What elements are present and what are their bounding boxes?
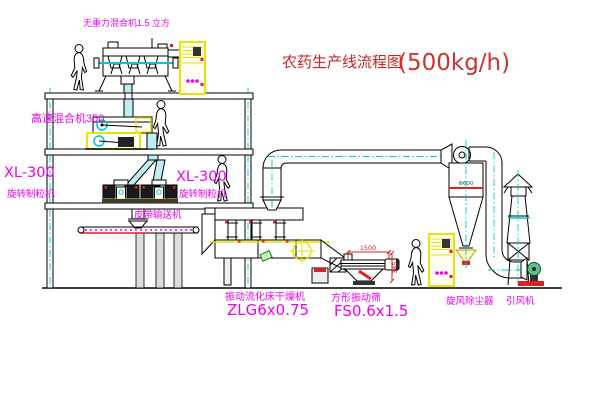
mixer-discharge-pipe — [124, 99, 133, 117]
cad-drawing-canvas: 1500 345 Φ600 无重力混合机1.5 立方 高速混合机350 XL-3… — [0, 0, 600, 403]
person-ground — [408, 240, 423, 286]
induced-draft-fan — [518, 258, 544, 286]
exhaust-duct — [260, 150, 455, 213]
granulator-right — [140, 180, 178, 203]
drawing-title: 农药生产线流程图 (500kg/h) — [282, 50, 510, 76]
label-granulator-left-name: 旋转制粒机 — [7, 188, 55, 200]
control-cabinet-top — [180, 42, 205, 94]
label-granulator-right-name: 旋转制粒机 — [179, 188, 227, 200]
cyclone-diameter-dimension: Φ600 — [459, 181, 474, 187]
floor-slab-top — [45, 93, 253, 99]
flow-diagram-svg: 1500 345 Φ600 无重力混合机1.5 立方 高速混合机350 XL-3… — [0, 0, 600, 403]
control-cabinet-right — [429, 234, 454, 286]
person-top-floor — [71, 45, 86, 91]
label-dryer-model: ZLG6x0.75 — [227, 301, 309, 319]
label-belt-conveyor: 皮带输送机 — [134, 209, 182, 221]
title-capacity: (500kg/h) — [398, 50, 510, 76]
label-cyclone: 旋风除尘器 — [446, 295, 494, 307]
label-high-speed-mixer: 高速混合机350 — [31, 111, 104, 125]
label-sieve-model: FS0.6x1.5 — [334, 302, 408, 320]
floor-slab-middle — [45, 149, 253, 155]
label-fan: 引风机 — [506, 295, 535, 307]
sieve-length-dimension: 1500 — [360, 244, 377, 252]
sieve-height-dimension: 345 — [391, 262, 399, 274]
title-text: 农药生产线流程图 — [282, 54, 402, 71]
label-gravity-free-mixer: 无重力混合机1.5 立方 — [83, 17, 170, 28]
gravity-free-mixer — [94, 38, 180, 117]
label-granulator-left-model: XL-300 — [4, 165, 55, 181]
label-granulator-right-model: XL-300 — [176, 169, 227, 185]
fluid-bed-dryer — [202, 208, 346, 285]
